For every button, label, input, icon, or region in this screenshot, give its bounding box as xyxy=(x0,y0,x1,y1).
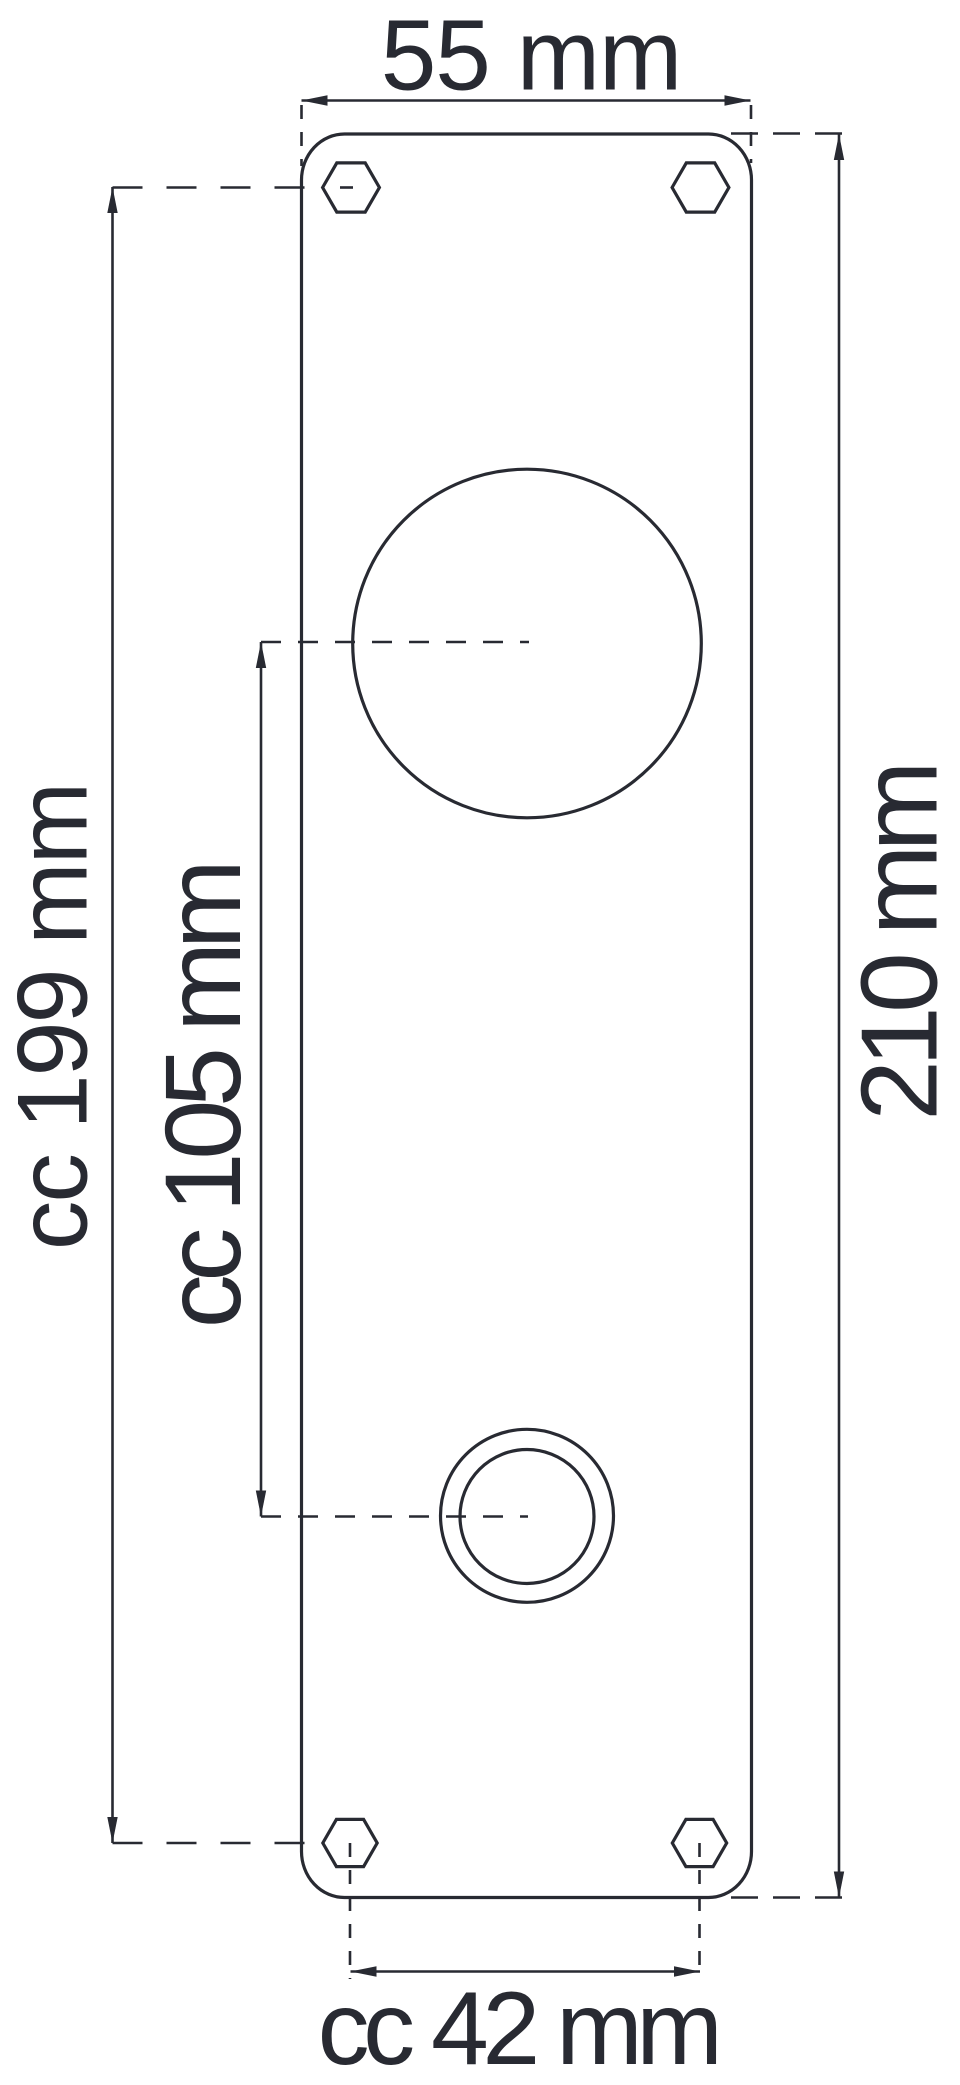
svg-text:cc 42 mm: cc 42 mm xyxy=(318,1971,717,2085)
svg-text:cc 105 mm: cc 105 mm xyxy=(142,866,263,1328)
svg-text:cc 199 mm: cc 199 mm xyxy=(0,784,108,1250)
svg-text:55 mm: 55 mm xyxy=(381,0,682,112)
svg-text:210 mm: 210 mm xyxy=(839,767,960,1121)
